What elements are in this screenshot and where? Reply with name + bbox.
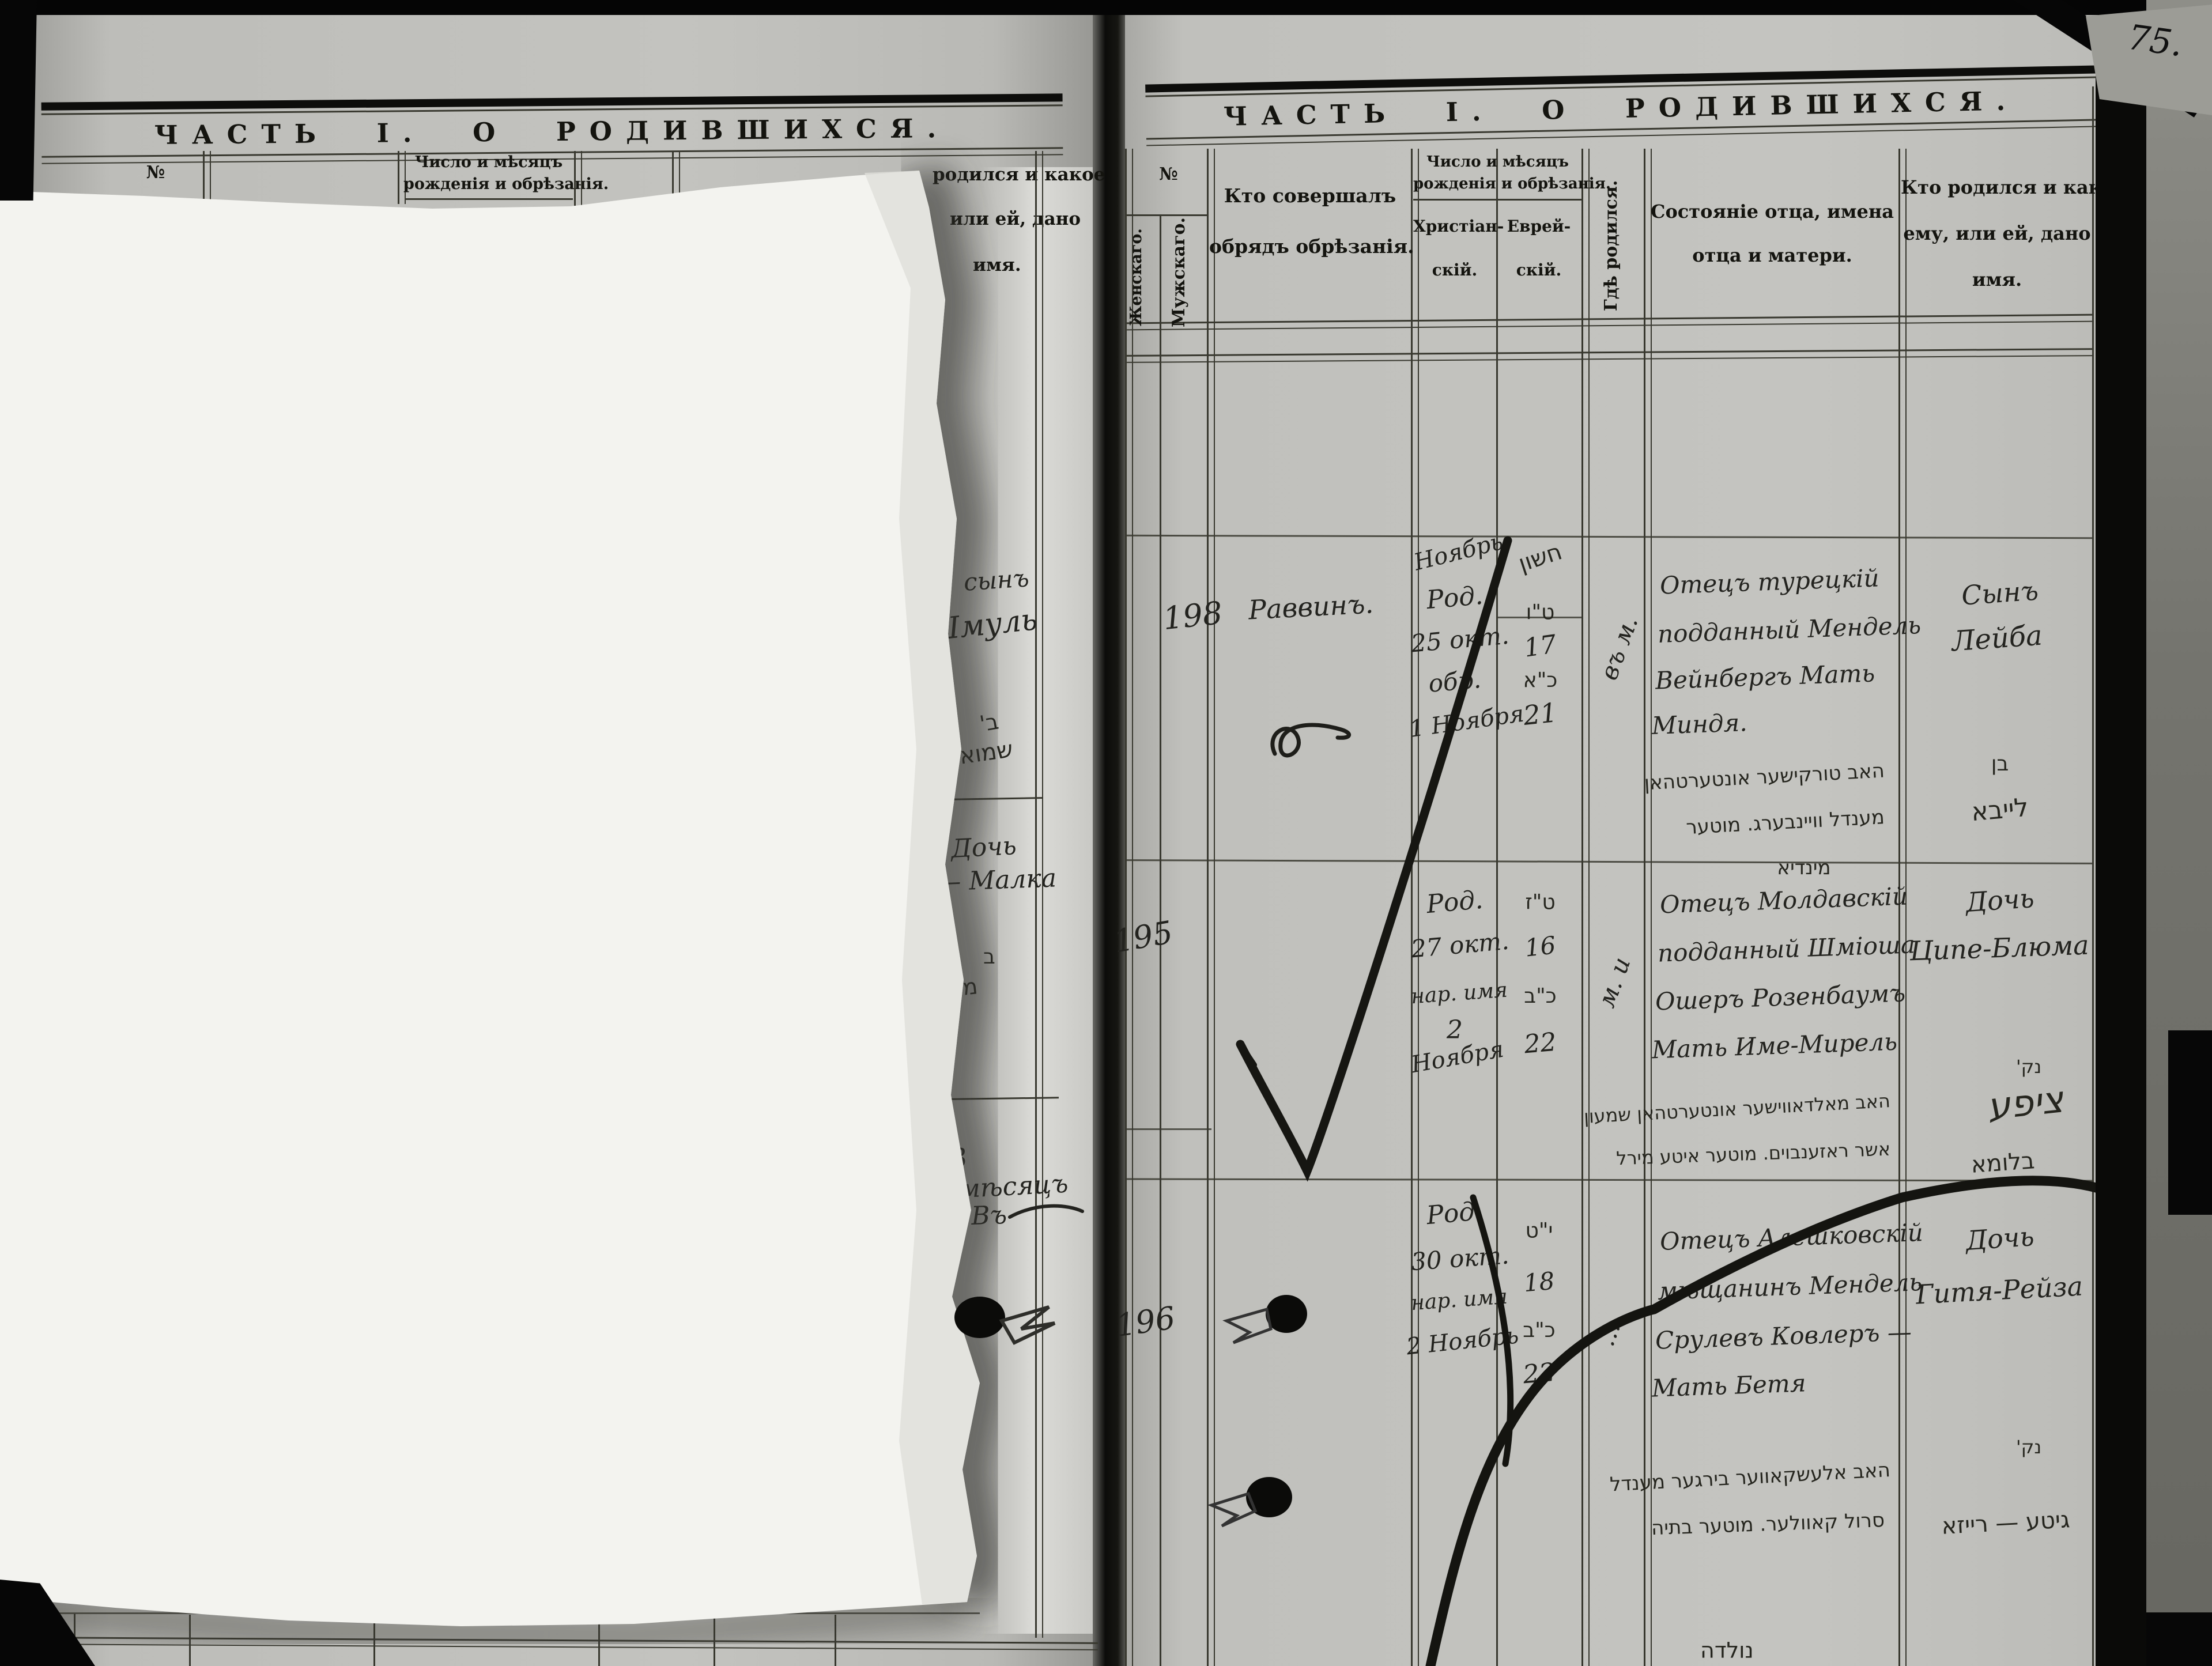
col-dates-1: Число и мѣсяцъ	[1413, 153, 1582, 171]
folio-number: 75.	[2126, 17, 2185, 65]
left-entry3-line2: оми. Въ	[902, 1200, 1007, 1233]
left-entry2-hebrew-1: ב	[983, 945, 995, 969]
left-bottom-colline	[714, 1617, 715, 1666]
right-edge-black-patch	[2168, 1030, 2212, 1215]
left-col-name-2: или ей, дано	[950, 209, 1065, 229]
left-entry1-word: сынъ	[962, 564, 1030, 596]
col-father-1: Состояніе отца, имена	[1646, 201, 1898, 222]
col-christian-2: скій.	[1413, 260, 1496, 279]
left-entry3-number: 23	[932, 1142, 969, 1177]
col-father-2: отца и матери.	[1646, 244, 1898, 266]
record-198-jdate-3: כ"א	[1498, 668, 1582, 692]
left-bottom-colline	[598, 1618, 600, 1666]
left-col-name-3: имя.	[973, 255, 1042, 275]
left-bottom-colline	[835, 1615, 836, 1666]
record-198-father-hebrew-2: מינדיא	[1746, 856, 1862, 879]
record-196-xdate-1: 30 окт.	[1410, 1242, 1498, 1276]
col-christian-1: Христіан-	[1413, 217, 1496, 236]
col-no: №	[1147, 164, 1190, 184]
record-196-name-hebrew-0: נק'	[2000, 1436, 2058, 1458]
record-196-father-hebrew-2: נולדה	[1700, 1638, 1754, 1663]
col-performer-1: Кто совершалъ	[1209, 184, 1411, 207]
record-196-jdate-2: כ"ב	[1497, 1319, 1581, 1342]
top-edge	[0, 0, 2212, 15]
table-left-border	[1125, 149, 1133, 1666]
left-colline	[203, 151, 211, 202]
left-col-dates-1: Число и мѣсяцъ	[403, 153, 574, 171]
colline-whereborn-right	[1644, 149, 1652, 1666]
record-195-jdate-2: כ"ב	[1498, 984, 1582, 1008]
archival-register-scan: ЧАСТЬ І. О РОДИВШИХСЯ. № Число и мѣсяцъ …	[0, 0, 2212, 1666]
left-entry2-name: ія — Малка	[902, 863, 1057, 898]
colline-jewish-right	[1581, 149, 1590, 1666]
right-binding-band	[2096, 74, 2146, 1666]
col-dates-2: рожденія и обрѣзанія.	[1413, 175, 1582, 192]
col-jewish-2: скій.	[1496, 260, 1581, 279]
left-col-no: №	[135, 163, 176, 183]
book-gutter	[1093, 8, 1128, 1666]
col-name-1: Кто родился и какое	[1901, 176, 2093, 198]
col-whereborn: Гдѣ родился.	[1601, 160, 1621, 311]
col-name-2: ему, или ей, дано	[1901, 222, 2093, 244]
left-entry2-word: Дочь	[950, 831, 1017, 864]
record-198-jdate-1: ט"ו	[1498, 600, 1582, 624]
right-page-edges	[2146, 0, 2212, 1666]
left-bottom-colline	[373, 1616, 375, 1666]
record-195-jdate-0: ט"ז	[1498, 890, 1582, 914]
col-name-3: имя.	[1901, 269, 2093, 290]
col-jewish-1: Еврей-	[1496, 217, 1581, 236]
record-198-name-hebrew-0: בן	[1960, 752, 2040, 776]
col-no-male: Мужскаго.	[1169, 212, 1189, 327]
record-198-number: 198	[1161, 596, 1213, 637]
left-col-dates-2: рожденія и обрѣзанія.	[403, 175, 574, 193]
record-196-number: 196	[1113, 1302, 1162, 1344]
left-edge-wedge	[0, 0, 37, 201]
left-bottom-colline	[189, 1615, 191, 1666]
record-195-name-hebrew-0: נק'	[2000, 1056, 2058, 1078]
col-performer-2: обрядъ обрѣзанія.	[1209, 235, 1411, 258]
left-colline	[672, 151, 680, 197]
record-198-father-3: Миндя.	[1651, 708, 1747, 740]
record-196-jdate-0: י"ט	[1497, 1219, 1581, 1242]
left-table-right-border	[1035, 151, 1043, 1638]
rowline-196-stub	[1125, 1128, 1211, 1130]
dates-group-rule	[1413, 199, 1582, 201]
record-196-father-3: Мать Бетя	[1651, 1369, 1806, 1402]
right-edge-bottom-patch	[2146, 1612, 2212, 1666]
col-no-female: Женскаго.	[1127, 211, 1145, 326]
left-bottom-rule	[35, 1612, 980, 1614]
colline-no-right	[1207, 149, 1215, 1666]
left-col-dates-rule	[405, 198, 573, 200]
left-colline	[574, 151, 582, 206]
